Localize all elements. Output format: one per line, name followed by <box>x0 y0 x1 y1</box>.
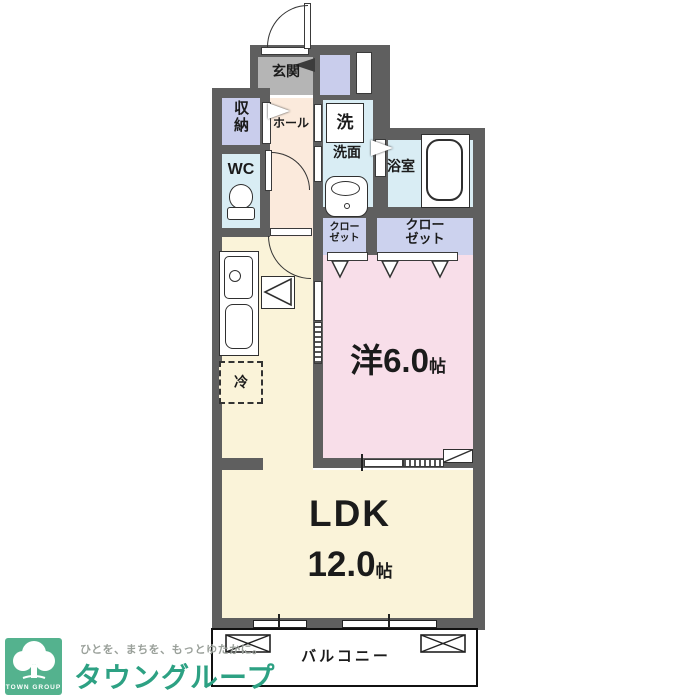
balcony-label: バルコニー <box>281 647 411 667</box>
wall-left-outer <box>212 88 222 630</box>
bathroom-label: 浴室 <box>380 158 422 176</box>
sink-drain <box>344 203 350 209</box>
western-bottom-door-track <box>403 459 444 467</box>
logo-tagline: ひとを、まちを、もっとゆたかに。 <box>80 641 264 657</box>
logo-brand: タウングループ <box>74 656 275 696</box>
toilet-icon <box>229 184 253 209</box>
genkan-label: 玄関 <box>262 62 310 82</box>
hall-ldk-door-leaf <box>270 228 312 236</box>
toilet-tank-icon <box>227 207 255 220</box>
western-bottom-door-panel <box>364 459 403 467</box>
counter-end-unit <box>261 276 295 309</box>
hanger-icon <box>381 261 399 284</box>
ldk-unit: 帖 <box>376 563 393 582</box>
ldk-window-left <box>253 620 307 628</box>
fridge-label: 冷 <box>234 375 248 390</box>
entry-side-board <box>356 52 372 94</box>
sink-icon <box>325 176 368 217</box>
wall-wc-bottom <box>212 228 268 237</box>
western-side-door <box>314 281 322 321</box>
washing-machine-icon: 洗 <box>326 103 364 143</box>
genkan-entry-sill <box>261 47 309 55</box>
entrance-door-arc <box>267 5 308 47</box>
wall-ldk-stub <box>212 458 263 470</box>
washer-label: 洗 <box>337 114 354 133</box>
hanger-icon <box>331 261 349 284</box>
washroom-sliding-door-b <box>314 146 322 182</box>
western-room-label: 洋6.0帖 <box>328 340 468 382</box>
tree-icon <box>9 641 58 686</box>
closet-small-label: クローゼット <box>327 222 362 244</box>
wall-right-outer <box>473 128 485 630</box>
balcony-vent-right <box>420 634 466 658</box>
closet-large-hanger-bar <box>377 252 458 261</box>
kitchen-faucet-icon <box>229 270 241 282</box>
storage-label: 収納 <box>233 101 250 134</box>
washroom-label: 洗面 <box>322 144 372 162</box>
shoe-cabinet <box>320 55 350 95</box>
kitchen-stove-icon <box>225 304 253 349</box>
sink-bowl <box>331 181 360 196</box>
town-group-logo: TOWN GROUP <box>5 638 62 695</box>
bathroom-door-marker <box>371 140 393 156</box>
fridge-icon: 冷 <box>219 361 263 404</box>
washroom-sliding-door-a <box>314 104 322 142</box>
wall-storage-wc <box>222 145 260 154</box>
floorplan-canvas: 洗 冷 バルコニー <box>0 0 700 700</box>
ldk-size: 12.0帖 <box>275 543 425 587</box>
town-group-badge-text: TOWN GROUP <box>5 682 62 692</box>
wall-closet-divider <box>366 218 377 255</box>
western-door-pocket <box>443 449 473 463</box>
western-room-unit: 帖 <box>429 358 446 377</box>
closet-large-label: クローゼット <box>402 218 448 247</box>
bathtub-inner <box>426 139 463 201</box>
ldk-title: LDK <box>280 492 420 536</box>
hall-label: ホール <box>270 115 312 133</box>
hanger-icon <box>431 261 449 284</box>
closet-small-hanger-bar <box>327 252 368 261</box>
wc-label: WC <box>222 160 260 180</box>
kitchen-counter <box>219 251 259 356</box>
western-side-door-track <box>314 322 322 364</box>
bathtub-icon <box>421 134 470 208</box>
western-door-tick <box>361 454 363 471</box>
